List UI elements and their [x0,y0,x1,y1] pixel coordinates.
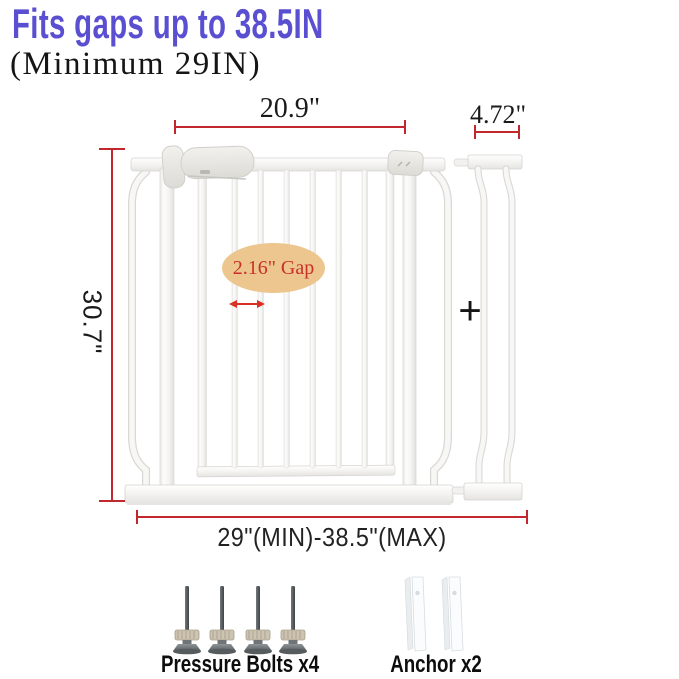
gate-height-measure-line [111,149,113,501]
gate-bottom-rail-shadow [127,502,451,505]
anchor-icon [442,577,463,651]
gate-latch-post [403,168,416,488]
gate-width-measure-line [175,126,405,128]
gate-width-label: 20.9" [175,93,405,125]
door-frame-right [386,170,394,470]
gate-leg-icon [132,172,448,488]
gap-arrow-icon [229,298,265,310]
door-frame-left [198,170,207,470]
gate-latch-icon [387,150,423,176]
plus-sign: + [452,291,488,331]
pressure-bolt-icon [244,586,272,654]
extension-top-spigot [454,159,469,166]
extension-bottom-bar [464,483,522,500]
extension-width-measure-line [475,131,519,133]
gate-bars [232,170,368,468]
extension-width-label: 4.72" [452,100,544,130]
pressure-bolt-icon [173,586,201,654]
gap-callout: 2.16" Gap [222,243,325,293]
gap-label: 2.16" Gap [233,257,314,280]
gate-bottom-rail [125,485,453,503]
pressure-bolt-icon [279,586,307,654]
gate-height-label: 30.7" [77,290,108,355]
width-range-measure-line [137,516,527,518]
gate-illustration [125,145,453,505]
anchors-illustration [405,577,463,651]
gate-hinge-post [160,168,174,488]
pressure-bolts-illustration [173,586,307,654]
anchor-icon [405,577,426,651]
page-subtitle: (Minimum 29IN) [10,46,261,83]
page-title: Fits gaps up to 38.5IN [12,2,324,46]
product-dimension-image: Fits gaps up to 38.5IN (Minimum 29IN) 20… [0,0,679,679]
width-range-label: 29"(MIN)-38.5"(MAX) [157,522,508,553]
pressure-bolts-label: Pressure Bolts x4 [161,651,317,679]
anchors-label: Anchor x2 [377,651,496,679]
gate-handle-icon [162,145,255,188]
pressure-bolt-icon [208,586,236,654]
